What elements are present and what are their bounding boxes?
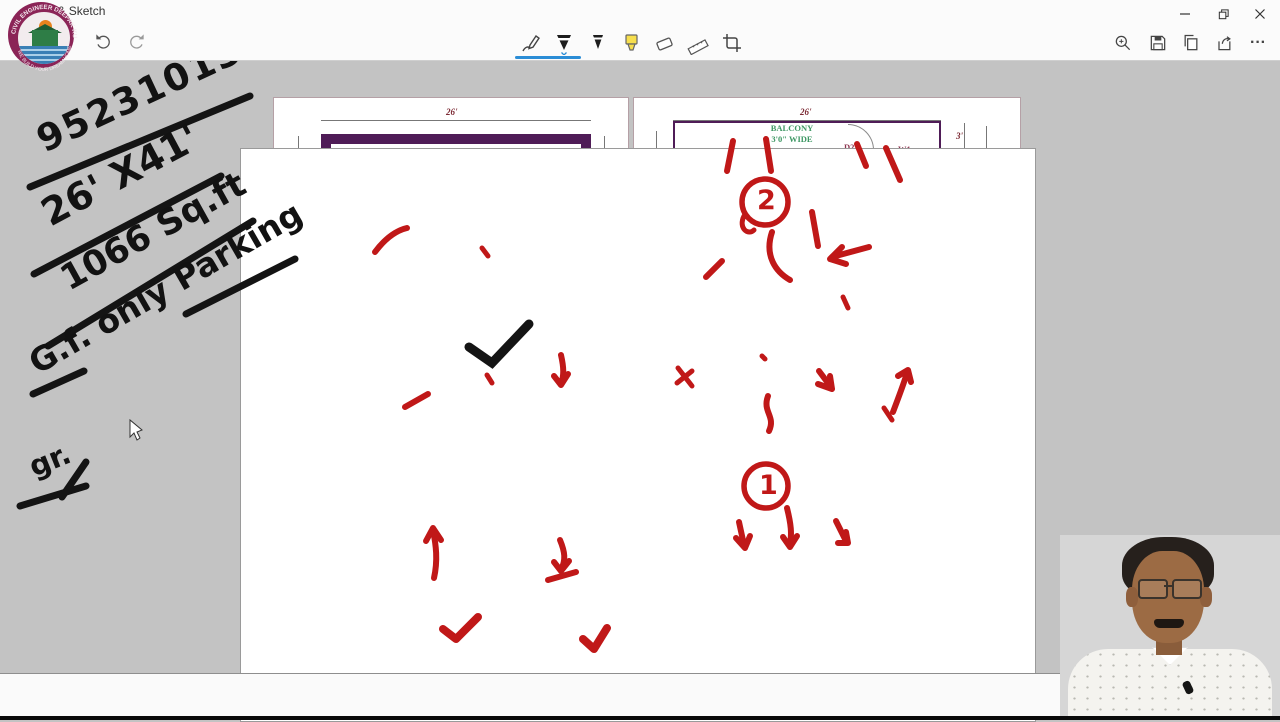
pencil-icon (586, 31, 610, 55)
svg-text:WE BUILD YOUR DREAM HOME: WE BUILD YOUR DREAM HOME (16, 45, 73, 74)
dim-line (321, 120, 591, 121)
minimize-icon (1179, 8, 1191, 20)
red-circled-number-1: 1 (759, 470, 778, 501)
more-button[interactable]: ··· (1243, 28, 1273, 58)
selected-tool-indicator (515, 56, 581, 59)
maximize-button[interactable] (1206, 2, 1240, 26)
crop-icon (720, 31, 744, 55)
red-circled-number-2: 2 (757, 185, 776, 216)
restore-icon (1217, 8, 1230, 21)
touch-writing-icon (519, 31, 543, 55)
dim-width-top: 26' (446, 107, 458, 117)
undo-icon (93, 31, 113, 51)
presenter-mustache (1154, 619, 1184, 628)
presenter-webcam (1060, 535, 1280, 716)
more-icon: ··· (1250, 34, 1266, 52)
eraser-tool[interactable] (650, 28, 680, 58)
ballpoint-pen-tool[interactable] (549, 28, 579, 58)
undo-button[interactable] (88, 26, 118, 56)
share-icon (1214, 33, 1234, 53)
highlighter-icon (619, 31, 643, 55)
balcony-top-label: BALCONY3'0" WIDE (744, 123, 840, 144)
zoom-button[interactable] (1108, 28, 1138, 58)
floor-plan-sheet (240, 148, 1036, 722)
copy-icon (1181, 33, 1201, 53)
save-icon (1148, 33, 1168, 53)
channel-logo: CIVIL ENGINEER DEEPAK KUMAR WE BUILD YOU… (6, 0, 82, 84)
close-button[interactable] (1243, 2, 1277, 26)
glasses-icon (1138, 579, 1168, 599)
dim-width-top: 26' (800, 107, 812, 117)
ruler-icon (686, 31, 710, 55)
ballpoint-pen-icon (552, 31, 576, 55)
crop-tool[interactable] (717, 28, 747, 58)
highlighter-tool[interactable] (616, 28, 646, 58)
redo-button[interactable] (122, 26, 152, 56)
ruler-tool[interactable] (683, 28, 713, 58)
toolbar: Snip & Sketch (0, 0, 1280, 61)
logo-text-arc: CIVIL ENGINEER DEEPAK KUMAR WE BUILD YOU… (6, 0, 82, 84)
magnifier-icon (1113, 33, 1133, 53)
pencil-tool[interactable] (583, 28, 613, 58)
snip-sketch-window: Snip & Sketch (0, 0, 1280, 720)
wall (321, 134, 591, 144)
svg-text:CIVIL ENGINEER DEEPAK KUMAR: CIVIL ENGINEER DEEPAK KUMAR (6, 0, 78, 39)
dim-balcony-top: 3' (956, 131, 963, 141)
bottom-black-bar (0, 716, 1280, 720)
redo-icon (127, 31, 147, 51)
glasses-icon (1172, 579, 1202, 599)
share-button[interactable] (1209, 28, 1239, 58)
eraser-icon (653, 31, 677, 55)
touch-writing-tool[interactable] (516, 28, 546, 58)
copy-button[interactable] (1176, 28, 1206, 58)
close-icon (1254, 8, 1266, 20)
save-button[interactable] (1143, 28, 1173, 58)
minimize-button[interactable] (1168, 2, 1202, 26)
